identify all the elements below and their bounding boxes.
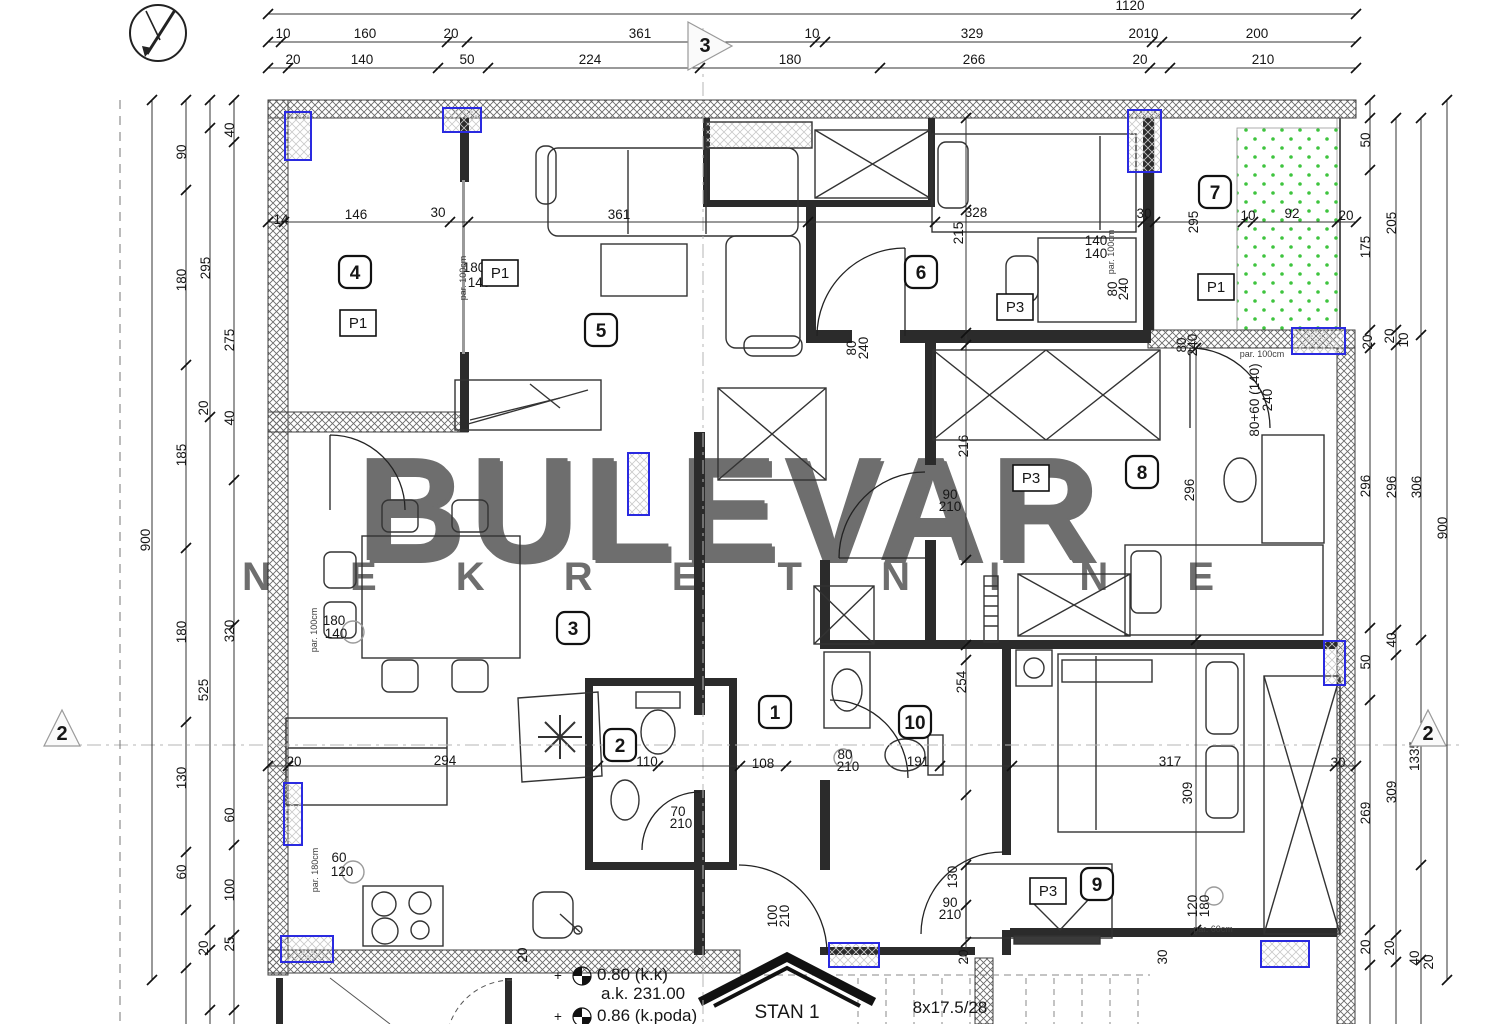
window <box>281 936 333 962</box>
door-room6 <box>817 248 905 336</box>
bath-sink <box>824 652 870 728</box>
dim-label: 224 <box>579 52 602 67</box>
position-label: P1 <box>491 265 509 282</box>
dim-label: 295 <box>198 257 213 280</box>
dim-label: 1120 <box>1115 0 1144 13</box>
stairs-label: 8x17.5/28 <box>913 998 988 1017</box>
stove <box>363 886 443 946</box>
dim-label: 294 <box>434 753 457 768</box>
window <box>628 453 649 515</box>
dim-label: 40 <box>1384 632 1399 647</box>
room-number: 5 <box>596 321 607 342</box>
watermark: BULEVAR BULEVAR N E K R E T N I N E <box>242 427 1248 599</box>
dim-label: 329 <box>961 26 984 41</box>
annotation-label: par. 100cm <box>1240 349 1285 359</box>
dim-label: 215 <box>951 222 966 245</box>
apartment-label: STAN 1 <box>754 1002 819 1023</box>
dim-label: 60 <box>331 850 346 865</box>
dim-label: 10 <box>1396 332 1411 347</box>
dim-label: 210 <box>837 759 860 774</box>
dim-label: 110 <box>636 754 658 769</box>
wardrobe-tall <box>1264 676 1340 934</box>
dim-label: 309 <box>1180 782 1195 805</box>
dim-label: 240 <box>1260 389 1275 412</box>
dim-label: 275 <box>222 329 237 352</box>
room-number: 6 <box>916 263 927 284</box>
room-number: 4 <box>350 263 361 284</box>
floor-plan-page: BULEVAR BULEVAR N E K R E T N I N E <box>0 0 1500 1024</box>
dim-label: 10 <box>804 26 819 41</box>
radiator <box>984 576 998 642</box>
dim-label: 328 <box>965 205 988 220</box>
dim-label: 20 <box>196 940 211 955</box>
position-label: P3 <box>1039 883 1057 900</box>
dim-label: 320 <box>222 620 237 643</box>
position-label: P1 <box>1207 279 1225 296</box>
dim-label: + <box>554 1009 562 1024</box>
dim-label: 140 <box>325 626 348 641</box>
dim-label: 240 <box>1185 334 1200 357</box>
elevator-shaft <box>706 122 930 198</box>
dim-label: 175 <box>1358 236 1373 259</box>
dim-label: 60 <box>174 864 189 879</box>
dim-label: 10 <box>1240 208 1255 223</box>
dim-label: 200 <box>1246 26 1269 41</box>
dim-label: 180 <box>174 621 189 644</box>
dim-label: 50 <box>1358 132 1373 147</box>
dim-label: 180 <box>779 52 802 67</box>
dim-label: 525 <box>196 679 211 702</box>
dim-label: 20 <box>1360 334 1375 349</box>
washing-machine <box>1016 650 1052 686</box>
dim-label: 140 <box>1085 246 1108 261</box>
dim-label: 30 <box>1155 949 1170 964</box>
footer-texts: 0.80 (k.k)a.k. 231.000.86 (k.poda)STAN 1… <box>597 965 987 1024</box>
window <box>443 108 481 132</box>
bed-room6 <box>932 134 1136 232</box>
dim-label: 20 <box>1358 939 1373 954</box>
kitchen-counter <box>286 718 447 805</box>
position-label: P3 <box>1022 470 1040 487</box>
north-arrow-icon <box>130 5 186 61</box>
window <box>1292 328 1345 354</box>
room-number: 8 <box>1137 463 1148 484</box>
kitchen-sink <box>533 892 582 938</box>
dim-label: 191 <box>907 754 930 769</box>
wall-bottom <box>268 950 740 973</box>
section-marker-number: 2 <box>1422 723 1433 745</box>
dim-label: 210 <box>939 907 962 922</box>
coffee-table <box>601 244 687 296</box>
window <box>1261 941 1309 967</box>
dim-label: 361 <box>629 26 652 41</box>
dim-label: 296 <box>1358 475 1373 498</box>
dim-label: 266 <box>963 52 986 67</box>
annotation-label: par. 100cm <box>458 256 468 301</box>
dim-label: 317 <box>1159 754 1182 769</box>
window <box>1128 110 1161 172</box>
annotation-label: par. 100cm <box>1106 230 1116 275</box>
dim-label: 180 <box>174 269 189 292</box>
doors <box>330 248 1270 953</box>
room-number: 3 <box>568 619 579 640</box>
dim-label: 20 <box>1132 52 1147 67</box>
dim-label: 20 <box>285 52 300 67</box>
section-marker-number: 2 <box>56 723 67 745</box>
dim-label: 10 <box>275 26 290 41</box>
wall-top <box>268 100 1356 118</box>
dim-label: 130 <box>945 866 960 889</box>
dim-label: 100 <box>222 879 237 902</box>
dim-label: 10 <box>1143 26 1158 41</box>
annotation-label: par. 180cm <box>310 848 320 893</box>
dim-label: 20 <box>515 947 530 962</box>
dim-label: 216 <box>956 435 971 458</box>
dim-label: 30 <box>1136 206 1151 221</box>
dim-label: 20 <box>286 754 301 769</box>
room-number: 2 <box>615 736 626 757</box>
dim-label: 295 <box>1186 211 1201 234</box>
dim-label: 40 <box>222 122 237 137</box>
room-number: 1 <box>770 703 781 724</box>
level-annotation: 0.86 (k.poda) <box>597 1006 697 1024</box>
position-label: P1 <box>349 315 367 332</box>
dim-label: 240 <box>1116 278 1131 301</box>
dim-label: 900 <box>1435 517 1450 540</box>
dim-label: 40 <box>222 410 237 425</box>
dim-label: 205 <box>1384 212 1399 235</box>
dim-label: 90 <box>174 144 189 159</box>
room-number: 9 <box>1092 875 1103 896</box>
dim-label: 20 <box>443 26 458 41</box>
level-annotation: a.k. 231.00 <box>601 984 685 1003</box>
dim-label: 40 <box>1407 950 1422 965</box>
dim-label: 240 <box>856 337 871 360</box>
dim-label: + <box>554 968 562 983</box>
dim-label: 210 <box>939 499 962 514</box>
dim-label: 30 <box>1330 755 1345 770</box>
window <box>829 943 879 967</box>
desk-room8 <box>1224 435 1324 543</box>
dim-label: 900 <box>138 529 153 552</box>
double-bed <box>1058 654 1244 832</box>
dim-label: 180 <box>1197 895 1212 918</box>
dim-label: 20 <box>1338 208 1353 223</box>
dim-label: 30 <box>430 205 445 220</box>
dim-label: 120 <box>331 864 354 879</box>
dim-label: 20 <box>1128 26 1143 41</box>
dim-label: 146 <box>345 207 368 222</box>
dim-label: 254 <box>954 670 969 693</box>
level-symbols <box>573 967 591 1024</box>
wc-sink <box>611 780 639 820</box>
dim-label: 210 <box>670 816 693 831</box>
dim-label: 20 <box>1382 328 1397 343</box>
dim-label: 50 <box>1358 654 1373 669</box>
dim-label: 20 <box>956 949 971 964</box>
dim-label: 14 <box>273 212 289 227</box>
dim-label: 306 <box>1409 476 1424 499</box>
dim-label: 20 <box>196 400 211 415</box>
dim-label: 108 <box>752 756 775 771</box>
dim-label: 20 <box>1421 954 1436 969</box>
dim-label: 361 <box>608 207 631 222</box>
dim-label: 269 <box>1358 802 1373 825</box>
dim-label: 130 <box>174 767 189 790</box>
room-number: 7 <box>1210 183 1221 204</box>
window <box>1324 641 1345 685</box>
dim-label: 25 <box>222 936 237 951</box>
room-number: 10 <box>904 713 925 734</box>
floor-plan-canvas: BULEVAR BULEVAR N E K R E T N I N E <box>0 0 1500 1024</box>
dim-label: 160 <box>354 26 377 41</box>
dim-label: 296 <box>1182 479 1197 502</box>
dim-label: 210 <box>1252 52 1275 67</box>
dim-label: 185 <box>174 444 189 467</box>
dim-label: 20 <box>1382 940 1397 955</box>
annotation-label: par. 60cm <box>1193 924 1233 934</box>
position-label: P3 <box>1006 299 1024 316</box>
dim-label: 50 <box>459 52 474 67</box>
terrace-floor <box>1154 118 1340 330</box>
window <box>285 112 311 160</box>
dim-label: 92 <box>1284 206 1299 221</box>
dim-label: 60 <box>222 807 237 822</box>
dim-label: 210 <box>777 905 792 928</box>
section-marker-number: 3 <box>699 35 710 57</box>
dim-label: 309 <box>1384 781 1399 804</box>
terrace-green-area <box>1237 128 1340 330</box>
level-annotation: 0.80 (k.k) <box>597 965 668 984</box>
annotation-label: par. 100cm <box>309 608 319 653</box>
dim-label: 140 <box>351 52 374 67</box>
window <box>284 783 302 845</box>
dim-label: 296 <box>1384 476 1399 499</box>
tv-unit <box>455 380 601 430</box>
sofa <box>536 146 802 356</box>
